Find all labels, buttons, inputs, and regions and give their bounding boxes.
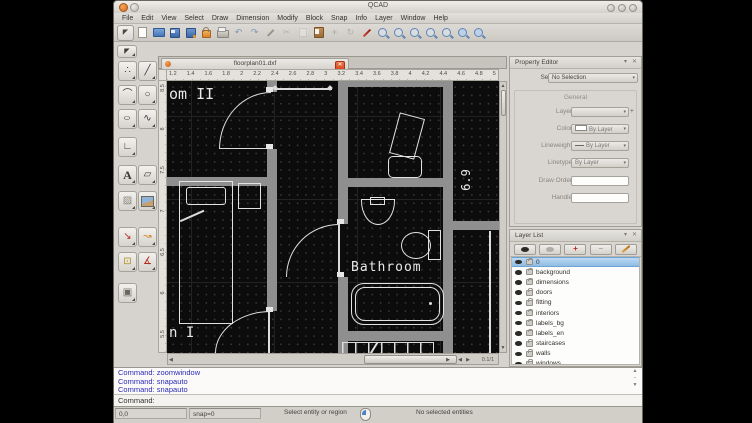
door-arc (286, 224, 339, 277)
line-tool-button[interactable]: ╱ (138, 61, 157, 81)
command-history-line: Command: snapauto (118, 378, 642, 387)
rotate-icon[interactable]: ↻ (343, 26, 358, 40)
layer-list-panel: Layer List ▾ ✕ + − 0 background dimensio… (509, 229, 642, 367)
property-editor-title: Property Editor (515, 59, 558, 66)
maximize-icon[interactable] (618, 4, 626, 12)
stairs (342, 342, 434, 353)
toilet-bowl (401, 232, 431, 259)
dimension-tick (327, 85, 333, 91)
shape-tool-button[interactable]: ▱ (138, 165, 157, 185)
copy-icon[interactable] (295, 26, 310, 40)
dimension-tool-button[interactable]: ↘ (118, 227, 137, 247)
coordinates-field: 0,0 (115, 408, 187, 419)
status-bar: 0,0 snap=0 Select entity or region No se… (114, 406, 642, 423)
chair-back (389, 112, 425, 159)
wall-marker (337, 219, 344, 224)
leader-tool-button[interactable]: ↝ (138, 227, 157, 247)
mouse-hint-icon (360, 408, 371, 421)
hatch-tool-button[interactable]: ▨ (118, 191, 137, 211)
menu-window[interactable]: Window (397, 15, 430, 22)
draw-order-label: Draw Order: (539, 177, 574, 184)
room1-label: n I (169, 325, 194, 341)
handle-input[interactable] (571, 193, 629, 203)
dimension-label: 6.9 (459, 169, 473, 191)
layer-dropdown[interactable]: ▾ (571, 107, 629, 117)
sink-tap (370, 197, 385, 205)
layer-list-header[interactable]: Layer List ▾ ✕ (510, 230, 641, 242)
door-leaf (338, 224, 340, 277)
draw-order-input[interactable] (571, 176, 629, 186)
wall-marker (266, 144, 273, 149)
vscroll-thumb[interactable] (501, 90, 506, 116)
wall (348, 81, 453, 87)
zoom-auto-icon[interactable] (407, 26, 422, 40)
ellipse-tool-button[interactable]: ○ (118, 109, 137, 129)
menu-snap[interactable]: Snap (327, 15, 351, 22)
bathtub-inner (355, 287, 440, 321)
window-title: QCAD (114, 2, 642, 9)
dimension-line (276, 88, 332, 90)
menu-draw[interactable]: Draw (208, 15, 232, 22)
horizontal-ruler: 1.21.41.6 1.822.2 2.42.62.8 33.23.4 3.63… (167, 69, 499, 81)
layer-row[interactable]: walls (512, 349, 639, 359)
pen-icon[interactable] (263, 26, 278, 40)
zoom-pan-icon[interactable] (455, 26, 470, 40)
menu-block[interactable]: Block (302, 15, 327, 22)
wall-line (489, 231, 491, 353)
menu-help[interactable]: Help (430, 15, 452, 22)
layer-row[interactable]: interiors (512, 308, 639, 318)
undo-icon[interactable]: ↶ (231, 26, 246, 40)
close-window-icon[interactable] (629, 4, 637, 12)
layer-row[interactable]: background (512, 267, 639, 277)
paste-icon[interactable] (311, 26, 326, 40)
block-tool-button[interactable]: ⊡ (118, 252, 137, 272)
layer-row[interactable]: fitting (512, 298, 639, 308)
menu-view[interactable]: View (157, 15, 180, 22)
layer-row[interactable]: 0 (512, 257, 639, 267)
vertical-ruler: 8.5 8 7.5 7 6.5 6 5.5 (158, 81, 167, 353)
menu-bar: File Edit View Select Draw Dimension Mod… (114, 13, 642, 24)
solid-tool-button[interactable]: ▣ (118, 283, 137, 303)
save-icon[interactable] (167, 26, 182, 40)
page-left-icon[interactable]: ◀ (458, 355, 462, 365)
selection-dropdown[interactable]: No Selection ▾ (548, 73, 638, 83)
minimize-icon[interactable] (607, 4, 615, 12)
cut-icon[interactable]: ✂ (279, 26, 294, 40)
wall (348, 331, 453, 341)
polyline-tool-button[interactable]: ∟ (118, 137, 137, 157)
vertical-scrollbar[interactable]: ▲ ▼ (499, 81, 507, 353)
status-hint: Select entity or region (284, 409, 347, 416)
general-group-title: General (515, 94, 636, 101)
panel-collapse-icon[interactable]: ▾ (624, 230, 627, 241)
open-file-icon[interactable] (151, 26, 166, 40)
selection-status: No selected entities (416, 409, 473, 416)
nightstand (238, 183, 261, 209)
door-leaf (268, 311, 270, 353)
measure-tool-button[interactable]: ∡ (138, 252, 157, 272)
zoom-previous-icon[interactable] (423, 26, 438, 40)
qcad-window: QCAD File Edit View Select Draw Dimensio… (113, 0, 643, 423)
redo-icon[interactable]: ↷ (247, 26, 262, 40)
toilet-tank (428, 230, 441, 260)
drawing-canvas[interactable]: om II n I Bathroom 6.9 (167, 81, 499, 353)
main-toolbar: ◤ ↶ ↷ ✂ + ↻ (114, 24, 642, 42)
general-group: General Layer: ▾ + Color: By Layer▾ Line… (514, 90, 637, 224)
page-right-icon[interactable]: ▶ (466, 355, 470, 365)
command-history[interactable]: Command: zoomwindow Command: snapauto Co… (114, 367, 642, 394)
menu-file[interactable]: File (118, 15, 137, 22)
property-editor-header[interactable]: Property Editor ▾ ✕ (510, 57, 641, 69)
circle-tool-button[interactable]: ○ (138, 85, 157, 105)
text-tool-button[interactable]: A (118, 165, 137, 185)
edit-layer-icon[interactable] (615, 244, 637, 255)
layer-row[interactable]: labels_bg (512, 318, 639, 328)
arc-tool-button[interactable]: ⌒ (118, 85, 137, 105)
snap-field: snap=0 (189, 408, 261, 419)
menu-modify[interactable]: Modify (273, 15, 302, 22)
panel-collapse-icon[interactable]: ▾ (624, 57, 627, 68)
menu-edit[interactable]: Edit (137, 15, 157, 22)
menu-layer[interactable]: Layer (371, 15, 397, 22)
print-icon[interactable] (215, 26, 230, 40)
menu-select[interactable]: Select (180, 15, 207, 22)
menu-info[interactable]: Info (351, 15, 371, 22)
zoom-window-icon[interactable] (439, 26, 454, 40)
room2-label: om II (169, 85, 214, 103)
layer-row[interactable]: labels_en (512, 328, 639, 338)
lineweight-label: Lineweight: (541, 142, 574, 149)
zoom-in-icon[interactable] (375, 26, 390, 40)
property-editor-panel: Property Editor ▾ ✕ Selection: No Select… (509, 56, 642, 227)
hscroll-thumb[interactable] (364, 355, 457, 364)
pillow (186, 187, 226, 205)
show-all-layers-icon[interactable] (514, 244, 536, 255)
wall (453, 221, 499, 230)
horizontal-scrollbar[interactable]: ◀ ▶ ◀ ▶ 0.1/1 (167, 353, 499, 365)
spline-tool-button[interactable]: ∿ (138, 109, 157, 129)
wall (348, 178, 453, 187)
point-tool-button[interactable]: ∴ (118, 61, 137, 81)
new-file-icon[interactable] (135, 26, 150, 40)
menu-dimension[interactable]: Dimension (232, 15, 273, 22)
save-as-icon[interactable] (183, 26, 198, 40)
wall-marker (266, 307, 273, 312)
move-icon[interactable]: + (327, 26, 342, 40)
add-layer-icon[interactable]: + (564, 244, 586, 255)
door-leaf (219, 148, 271, 150)
layer-row[interactable]: windows (512, 359, 639, 365)
panel-close-icon[interactable]: ✕ (632, 57, 637, 68)
command-history-scroll[interactable]: ▲−▼ (631, 368, 639, 389)
zoom-redraw-icon[interactable] (471, 26, 486, 40)
wall (338, 81, 348, 224)
remove-layer-icon[interactable]: − (590, 244, 612, 255)
bathroom-label: Bathroom (351, 260, 422, 275)
lineweight-dropdown[interactable]: By Layer▾ (571, 141, 629, 151)
layer-row[interactable]: doors (512, 288, 639, 298)
command-input[interactable]: Command: (114, 394, 642, 406)
layer-row[interactable]: staircases (512, 339, 639, 349)
command-history-line: Command: zoomwindow (118, 369, 642, 378)
wall (443, 81, 453, 353)
selection-pointer-icon[interactable]: ◤ (117, 25, 134, 41)
layer-row[interactable]: dimensions (512, 277, 639, 287)
wall-marker (337, 272, 344, 277)
ruler-corner (158, 69, 167, 81)
lock-icon[interactable] (199, 26, 214, 40)
bathtub-drain (429, 302, 432, 305)
page-indicator: 0.1/1 (482, 357, 494, 363)
zoom-out-icon[interactable] (391, 26, 406, 40)
image-tool-button[interactable] (138, 191, 157, 211)
document-title: floorplan01.dxf (162, 60, 348, 67)
edit-icon[interactable] (359, 26, 374, 40)
linetype-dropdown[interactable]: By Layer▾ (571, 158, 629, 168)
layer-list: 0 background dimensions doors fitting in… (511, 256, 640, 365)
door-arc (219, 92, 271, 149)
layer-toolbar: + − (510, 242, 641, 257)
color-dropdown[interactable]: By Layer▾ (571, 124, 629, 134)
document-tab-bar: floorplan01.dxf ✕ (158, 56, 507, 69)
hide-all-layers-icon[interactable] (539, 244, 561, 255)
add-layer-icon[interactable]: + (630, 108, 634, 115)
command-prompt: Command: (118, 396, 155, 405)
layer-list-title: Layer List (515, 232, 543, 239)
chair-seat (388, 156, 422, 178)
palette-back-button[interactable]: ◤ (117, 45, 137, 58)
panel-close-icon[interactable]: ✕ (632, 230, 637, 241)
wall (267, 149, 277, 311)
screen: QCAD File Edit View Select Draw Dimensio… (0, 0, 752, 423)
